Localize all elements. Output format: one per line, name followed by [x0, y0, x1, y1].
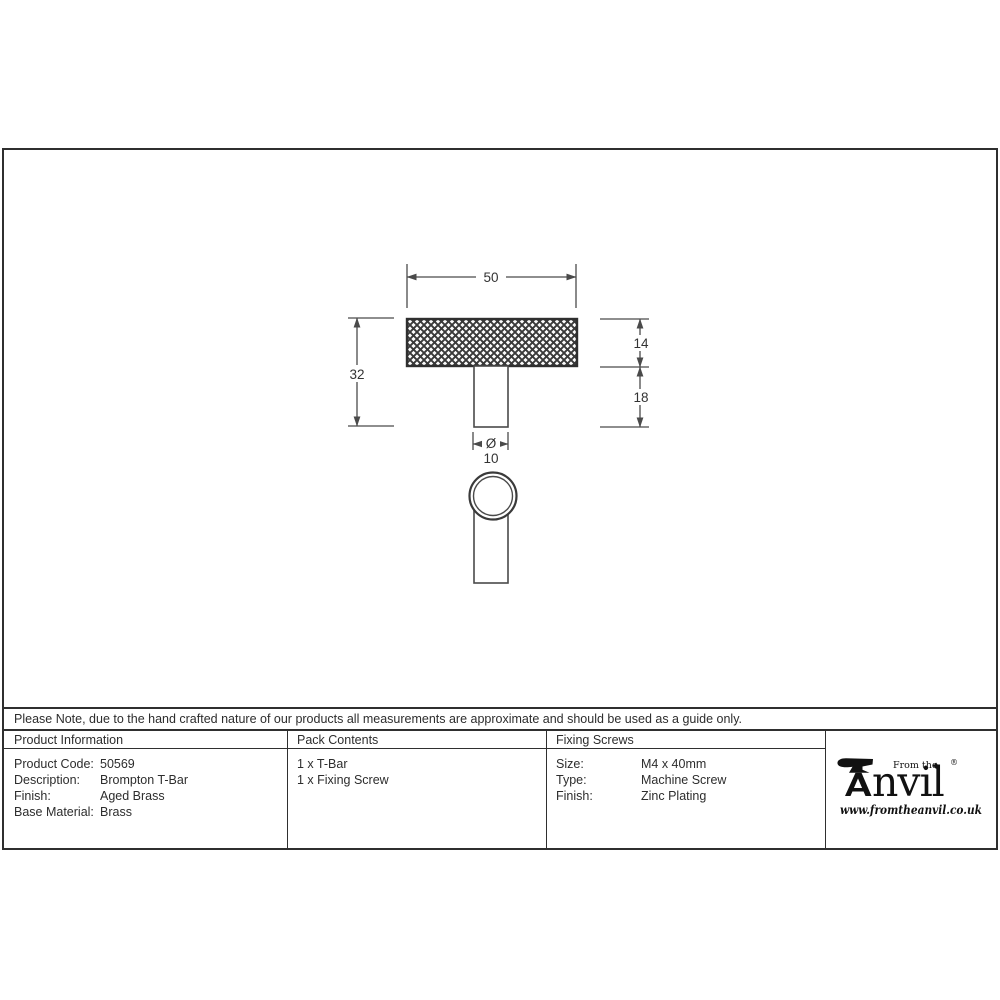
row-label: Finish: [556, 788, 641, 804]
table-row: Description: Brompton T-Bar [14, 772, 188, 788]
row-value: 50569 [100, 756, 135, 772]
drawing-frame: 50 32 14 18 Ø 10 Please Note, due to the… [2, 148, 998, 850]
dim-diameter-label: 10 [483, 451, 498, 466]
row-value: Brass [100, 804, 132, 820]
row-value: Brompton T-Bar [100, 772, 188, 788]
pack-contents-body: 1 x T-Bar 1 x Fixing Screw [297, 756, 389, 788]
table-row: Type: Machine Screw [556, 772, 726, 788]
row-label: Base Material: [14, 804, 100, 820]
row-value: Machine Screw [641, 772, 726, 788]
row-label: Type: [556, 772, 641, 788]
table-row: Finish: Aged Brass [14, 788, 188, 804]
product-info-body: Product Code: 50569 Description: Brompto… [14, 756, 188, 820]
row-label: Size: [556, 756, 641, 772]
fixing-screws-header: Fixing Screws [546, 732, 634, 748]
anvil-logo-graphic: nvil From the ♦ ® www.fromtheanvil.co.uk [836, 757, 986, 819]
row-label: Finish: [14, 788, 100, 804]
dim-bar-height-label: 14 [633, 336, 649, 351]
anvil-logo: nvil From the ♦ ® www.fromtheanvil.co.uk [825, 757, 996, 819]
table-row: Size: M4 x 40mm [556, 756, 726, 772]
anvil-letter-a-crossbar [850, 788, 866, 792]
dim-stem-height-label: 18 [633, 390, 648, 405]
dim-width-label: 50 [483, 270, 498, 285]
table-row: Base Material: Brass [14, 804, 188, 820]
bar-end-side-view-outer [470, 473, 517, 520]
row-label: Description: [14, 772, 100, 788]
row-value: M4 x 40mm [641, 756, 706, 772]
row-value: Aged Brass [100, 788, 165, 804]
diamond-icon: ♦ [932, 762, 940, 772]
spec-table: Product Information Pack Contents Fixing… [4, 731, 996, 848]
note-row: Please Note, due to the hand crafted nat… [4, 707, 996, 731]
technical-drawing: 50 32 14 18 Ø 10 [4, 150, 996, 707]
pack-contents-header: Pack Contents [287, 732, 378, 748]
anvil-icon [837, 758, 873, 773]
note-text: Please Note, due to the hand crafted nat… [4, 712, 742, 726]
header-underline [4, 748, 826, 749]
dim-total-height-label: 32 [349, 367, 364, 382]
column-divider [546, 731, 547, 848]
table-row: Product Code: 50569 [14, 756, 188, 772]
product-spec-sheet: 50 32 14 18 Ø 10 Please Note, due to the… [0, 0, 1000, 1000]
table-row: Finish: Zinc Plating [556, 788, 726, 804]
row-value: Zinc Plating [641, 788, 706, 804]
anvil-letter-a [845, 773, 872, 796]
fixing-screws-body: Size: M4 x 40mm Type: Machine Screw Fini… [556, 756, 726, 804]
column-divider [287, 731, 288, 848]
row-label: Product Code: [14, 756, 100, 772]
stem-front-view [474, 366, 508, 427]
diameter-symbol: Ø [486, 436, 497, 451]
knurled-bar-front-view [407, 319, 577, 366]
list-item: 1 x Fixing Screw [297, 772, 389, 788]
list-item: 1 x T-Bar [297, 756, 389, 772]
registered-mark: ® [950, 758, 958, 767]
logo-url: www.fromtheanvil.co.uk [840, 802, 982, 817]
product-info-header: Product Information [4, 732, 123, 748]
